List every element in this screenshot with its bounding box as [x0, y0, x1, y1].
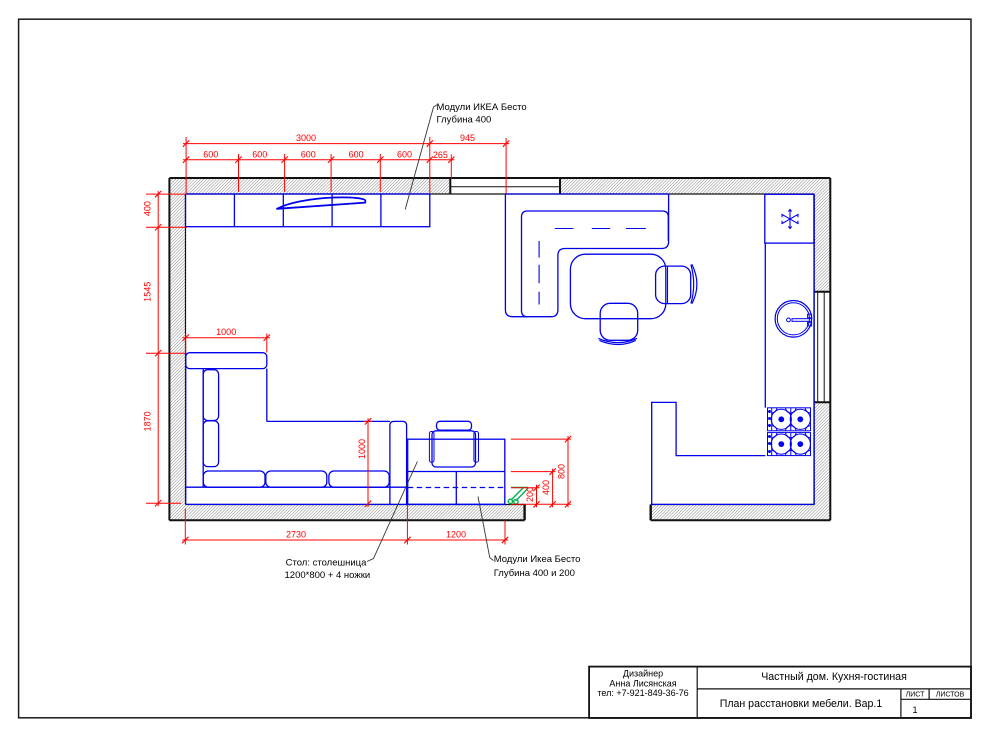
- svg-text:Стол: столешница: Стол: столешница: [286, 558, 368, 569]
- svg-text:600: 600: [397, 149, 412, 159]
- svg-text:600: 600: [252, 149, 267, 159]
- svg-text:1000: 1000: [216, 327, 236, 337]
- svg-text:600: 600: [301, 149, 316, 159]
- svg-text:1200: 1200: [446, 530, 466, 540]
- svg-text:Анна Лисянская: Анна Лисянская: [609, 678, 676, 688]
- svg-text:Частный дом. Кухня-гостиная: Частный дом. Кухня-гостиная: [761, 671, 907, 683]
- svg-text:Глубина 400 и 200: Глубина 400 и 200: [494, 568, 575, 579]
- svg-text:265: 265: [433, 150, 448, 160]
- svg-text:ЛИСТ: ЛИСТ: [906, 692, 925, 699]
- svg-text:2730: 2730: [286, 530, 306, 540]
- svg-text:ЛИСТОВ: ЛИСТОВ: [936, 692, 965, 699]
- svg-text:Модули ИКЕА Бесто: Модули ИКЕА Бесто: [437, 102, 527, 113]
- svg-text:1200*800 + 4 ножки: 1200*800 + 4 ножки: [285, 570, 371, 581]
- svg-text:800: 800: [557, 464, 567, 479]
- svg-text:600: 600: [349, 149, 364, 159]
- svg-text:1: 1: [912, 705, 917, 715]
- svg-text:План расстановки мебели. Вар.1: План расстановки мебели. Вар.1: [720, 698, 883, 710]
- svg-text:400: 400: [143, 201, 153, 216]
- svg-text:600: 600: [203, 149, 218, 159]
- svg-text:тел: +7-921-849-36-76: тел: +7-921-849-36-76: [597, 688, 688, 698]
- svg-text:400: 400: [541, 480, 551, 495]
- svg-text:3000: 3000: [296, 133, 316, 143]
- svg-text:1545: 1545: [143, 282, 153, 302]
- svg-text:1870: 1870: [143, 411, 153, 431]
- svg-text:200: 200: [525, 487, 535, 502]
- svg-text:Дизайнер: Дизайнер: [623, 669, 663, 679]
- svg-text:Глубина 400: Глубина 400: [437, 114, 492, 125]
- svg-text:945: 945: [460, 133, 475, 143]
- svg-text:1000: 1000: [357, 439, 367, 459]
- svg-text:Модули Икеа Бесто: Модули Икеа Бесто: [494, 554, 581, 565]
